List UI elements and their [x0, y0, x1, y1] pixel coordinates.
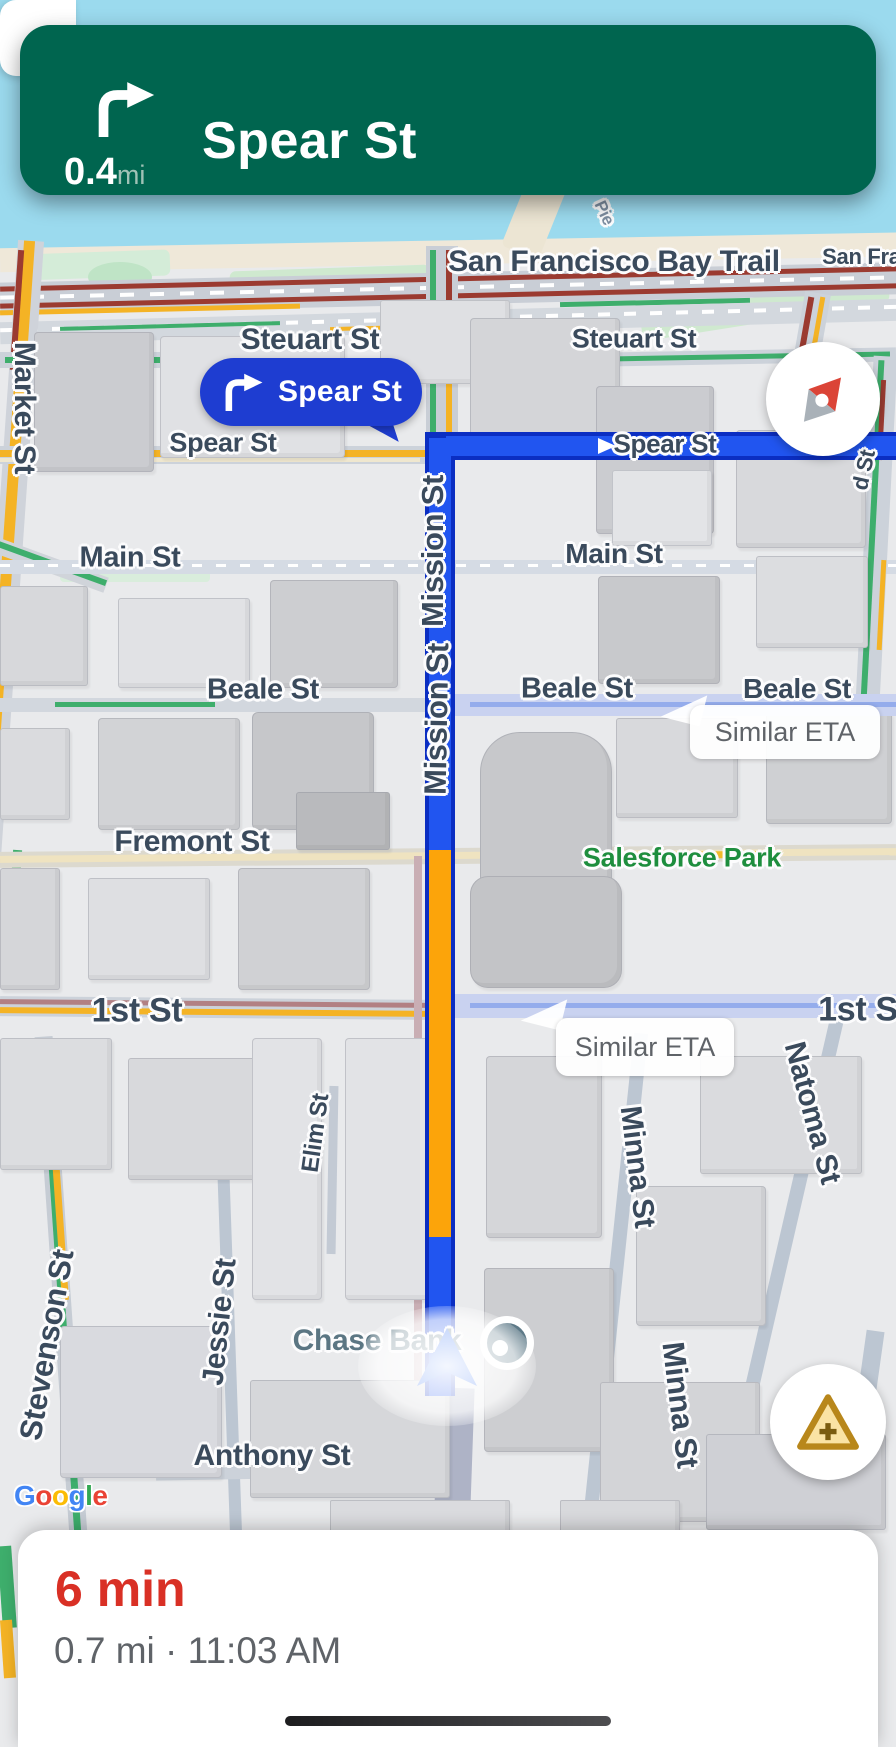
- report-hazard-button[interactable]: [770, 1364, 886, 1480]
- navigation-banner[interactable]: 0.4mi Spear St: [20, 25, 876, 195]
- eta-distance-arrival: 0.7 mi · 11:03 AM: [54, 1630, 341, 1672]
- location-puck-glow: [358, 1306, 536, 1426]
- turn-callout-label: Spear St: [278, 375, 402, 409]
- similar-eta-label: Similar ETA: [575, 1032, 716, 1063]
- google-logo: Google: [14, 1480, 107, 1512]
- similar-eta-label: Similar ETA: [715, 717, 856, 748]
- next-turn-callout[interactable]: Spear St: [200, 358, 422, 426]
- home-indicator[interactable]: [285, 1716, 611, 1726]
- turn-right-icon: [90, 81, 158, 137]
- hazard-icon: [796, 1391, 860, 1453]
- similar-eta-callout-1[interactable]: Similar ETA: [690, 705, 880, 759]
- banner-distance: 0.4mi: [64, 151, 145, 194]
- map-canvas[interactable]: Spear St Similar ETA Similar ETA <: [0, 0, 896, 1747]
- banner-instruction: Spear St: [202, 111, 417, 171]
- trip-summary-sheet[interactable]: 6 min 0.7 mi · 11:03 AM: [18, 1530, 878, 1747]
- google-maps-navigation-screen: San Francisco Bay TrailSan FranPieMarket…: [0, 0, 896, 1747]
- distance-unit: mi: [117, 160, 146, 190]
- similar-eta-callout-2[interactable]: Similar ETA: [556, 1018, 734, 1076]
- compass-button[interactable]: [766, 342, 880, 456]
- compass-icon: [777, 353, 870, 446]
- turn-right-icon: [220, 373, 264, 411]
- distance-value: 0.4: [64, 151, 117, 193]
- eta-duration: 6 min: [55, 1560, 186, 1618]
